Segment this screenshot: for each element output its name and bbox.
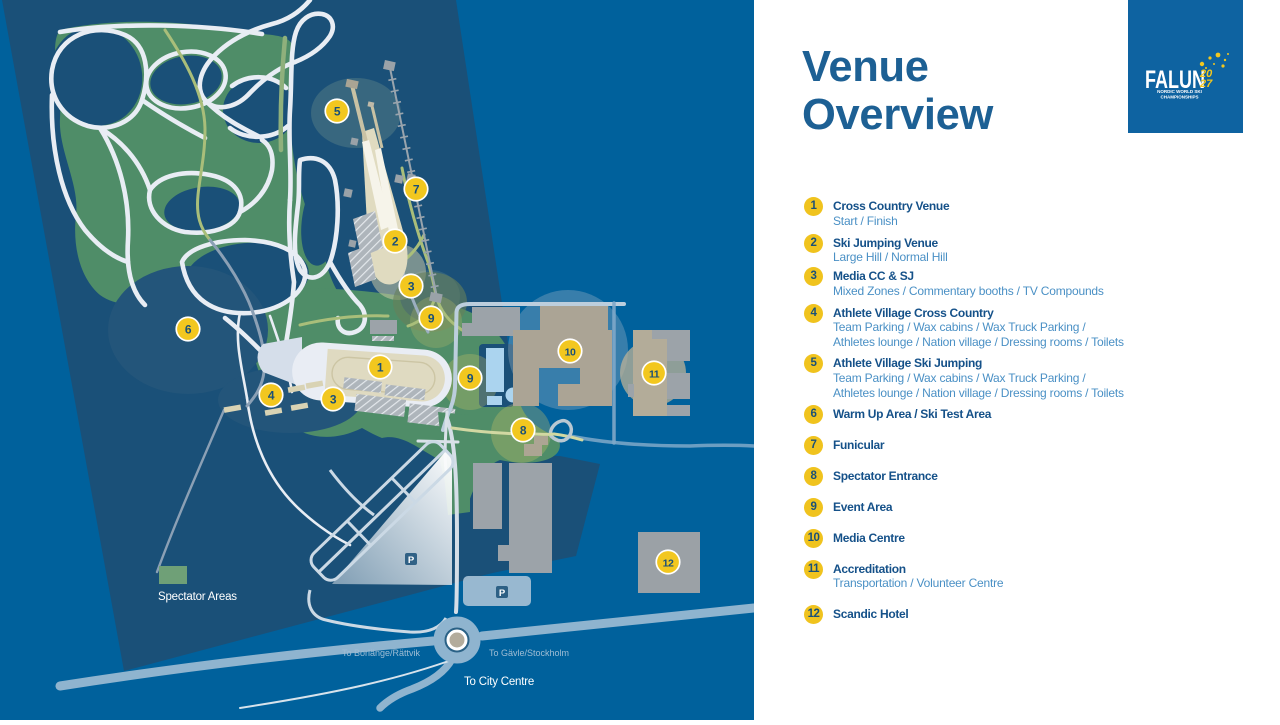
svg-text:To Borlänge/Rättvik: To Borlänge/Rättvik xyxy=(342,648,421,658)
svg-text:2: 2 xyxy=(392,234,399,248)
svg-text:P: P xyxy=(499,588,506,599)
svg-text:5: 5 xyxy=(334,104,341,118)
svg-text:9: 9 xyxy=(467,371,474,385)
svg-text:3: 3 xyxy=(408,279,415,293)
svg-text:12: 12 xyxy=(663,557,674,569)
svg-text:8: 8 xyxy=(520,423,527,437)
svg-text:To Gävle/Stockholm: To Gävle/Stockholm xyxy=(489,648,569,658)
svg-text:11: 11 xyxy=(649,368,660,380)
svg-text:Spectator Areas: Spectator Areas xyxy=(158,591,237,603)
svg-text:3: 3 xyxy=(330,392,337,406)
svg-text:6: 6 xyxy=(185,322,192,336)
svg-text:7: 7 xyxy=(413,182,420,196)
svg-text:P: P xyxy=(408,555,415,566)
svg-text:1: 1 xyxy=(377,360,384,374)
svg-text:9: 9 xyxy=(428,311,435,325)
svg-text:4: 4 xyxy=(268,388,275,402)
svg-text:To City Centre: To City Centre xyxy=(464,676,534,688)
svg-text:10: 10 xyxy=(565,346,576,358)
